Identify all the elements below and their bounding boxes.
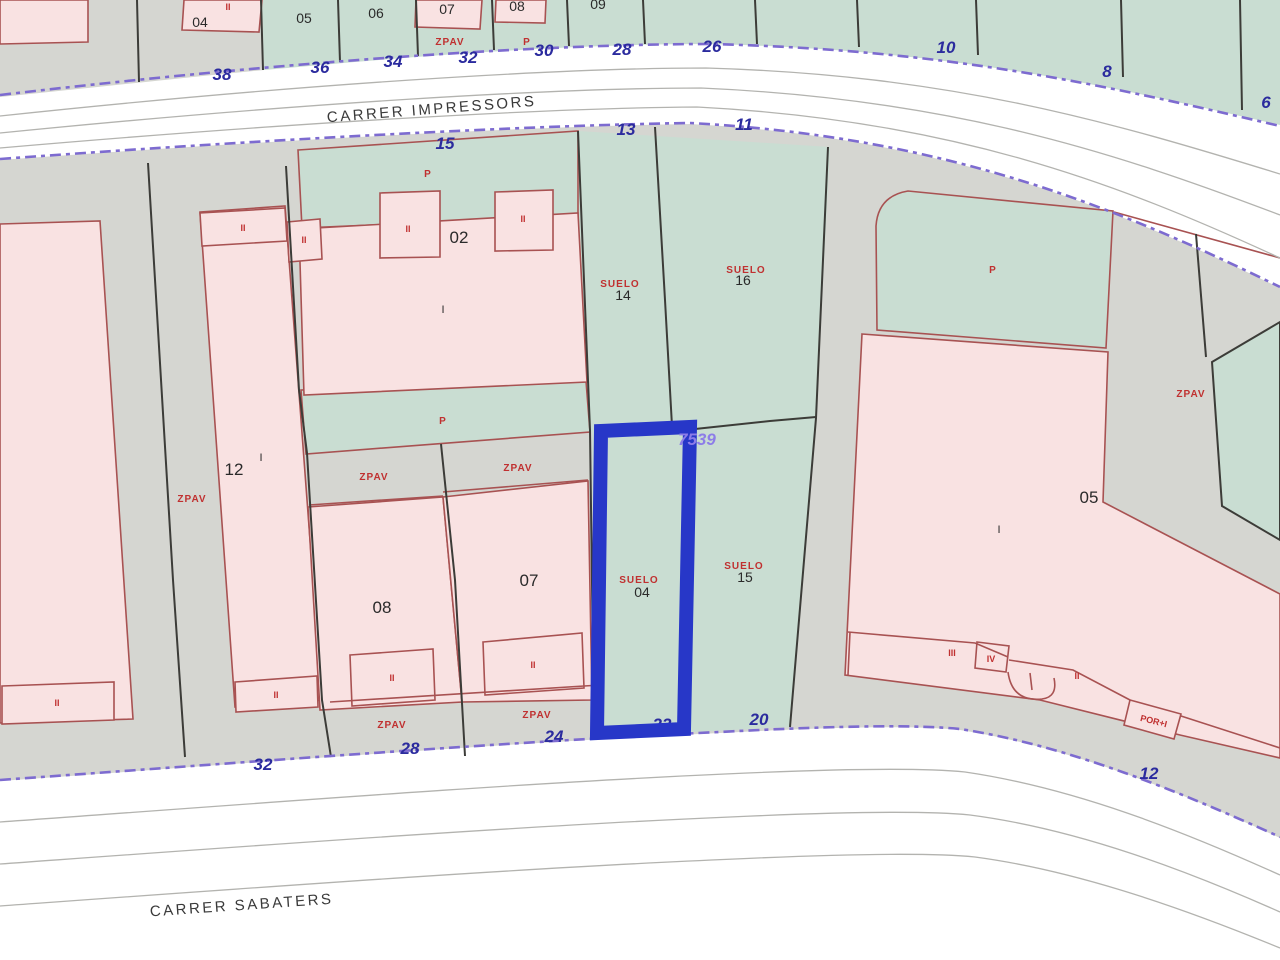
storey-label: IV <box>987 654 996 664</box>
parcel-number: 07 <box>520 571 539 590</box>
storey-label: III <box>948 648 956 658</box>
storey-label: II <box>240 223 245 233</box>
parcel-number: 16 <box>735 272 751 288</box>
reference-number: 7539 <box>678 430 716 449</box>
parcel-number: 04 <box>192 14 208 30</box>
house-number: 32 <box>254 755 273 774</box>
parcel-number: 05 <box>296 10 312 26</box>
storey-label: II <box>225 2 230 12</box>
zone-label-p: P <box>424 169 432 180</box>
parcel-number: 14 <box>615 287 631 303</box>
parcel-number: 08 <box>509 0 525 14</box>
house-number: 20 <box>749 710 769 729</box>
parcel-number: 12 <box>225 460 244 479</box>
house-number: 36 <box>311 58 330 77</box>
parcel-number: 07 <box>439 1 455 17</box>
storey-label: II <box>530 660 535 670</box>
house-number: 15 <box>436 134 455 153</box>
house-number: 11 <box>735 115 753 134</box>
house-number: 24 <box>544 727 564 746</box>
house-number: 6 <box>1261 93 1271 112</box>
house-number: 38 <box>213 65 232 84</box>
parcel-number: 04 <box>634 584 650 600</box>
parcel-number: 09 <box>590 0 606 12</box>
storey-label: II <box>389 673 394 683</box>
zone-label-p: P <box>989 265 997 276</box>
storey-label: II <box>54 698 59 708</box>
house-number: 8 <box>1102 62 1112 81</box>
house-number: 10 <box>937 38 956 57</box>
house-number: 28 <box>400 739 420 758</box>
zone-label-zpav: ZPAV <box>359 472 388 483</box>
zone-label-p: P <box>439 416 447 427</box>
storey-label: I <box>997 524 1000 536</box>
zone-label-zpav: ZPAV <box>522 710 551 721</box>
parcel-number: 15 <box>737 569 753 585</box>
zone-label-zpav: ZPAV <box>377 720 406 731</box>
storey-label: II <box>520 214 525 224</box>
storey-label: II <box>405 224 410 234</box>
storey-label: I <box>441 304 444 316</box>
cadastral-map: 22 04 05 06 07 08 09 II ZPAV P 38 36 34 … <box>0 0 1280 960</box>
house-number: 28 <box>612 40 632 59</box>
zone-label-p: P <box>523 37 531 48</box>
storey-label: II <box>301 235 306 245</box>
house-number: 34 <box>384 52 403 71</box>
house-number: 30 <box>535 41 554 60</box>
zone-label-zpav: ZPAV <box>1176 389 1205 400</box>
parcel-number: 05 <box>1080 488 1099 507</box>
house-number: 12 <box>1140 764 1159 783</box>
house-number: 13 <box>617 120 636 139</box>
storey-label: I <box>259 452 262 464</box>
parcel-number: 06 <box>368 5 384 21</box>
zone-label-zpav: ZPAV <box>503 463 532 474</box>
house-number: 26 <box>702 37 722 56</box>
parcel-number: 08 <box>373 598 392 617</box>
zone-label-zpav: ZPAV <box>435 37 464 48</box>
house-number: 32 <box>459 48 478 67</box>
building-top-left[interactable] <box>0 0 88 44</box>
parcel-number: 02 <box>450 228 469 247</box>
zone-label-zpav: ZPAV <box>177 494 206 505</box>
storey-label: II <box>1074 671 1079 681</box>
storey-label: II <box>273 690 278 700</box>
